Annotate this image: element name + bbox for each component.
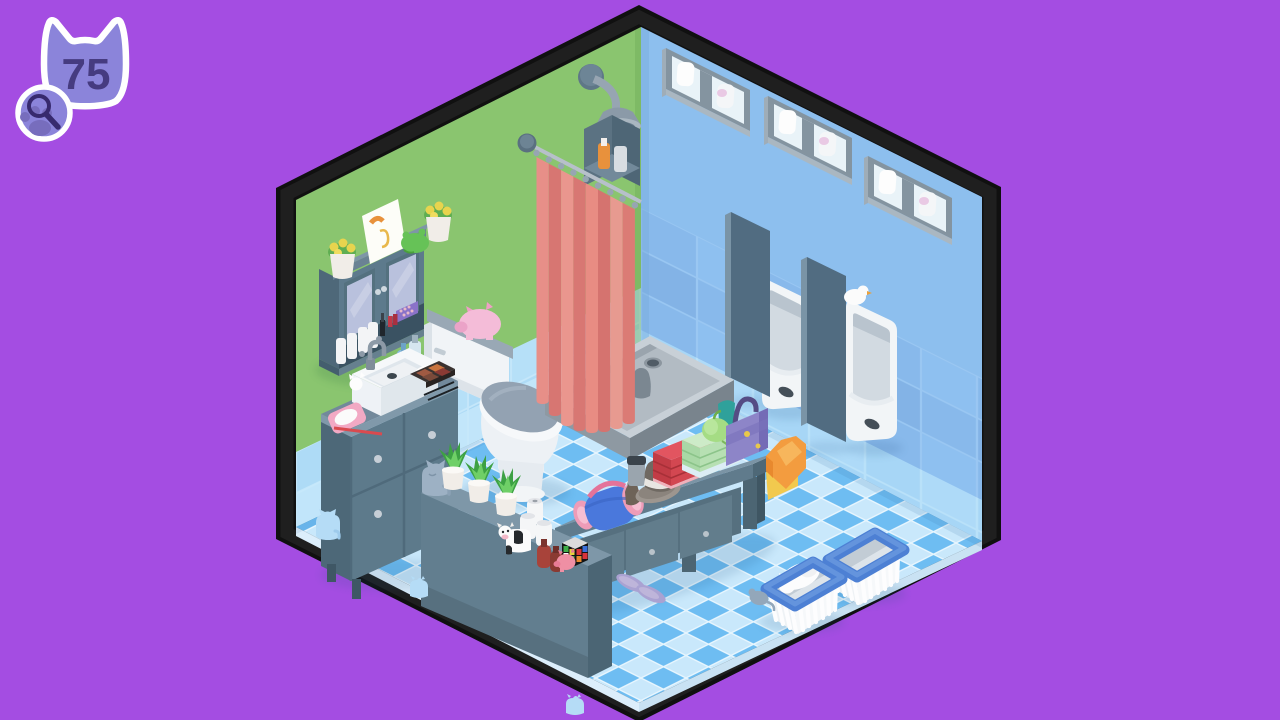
svg-text:75: 75 [62,50,111,99]
